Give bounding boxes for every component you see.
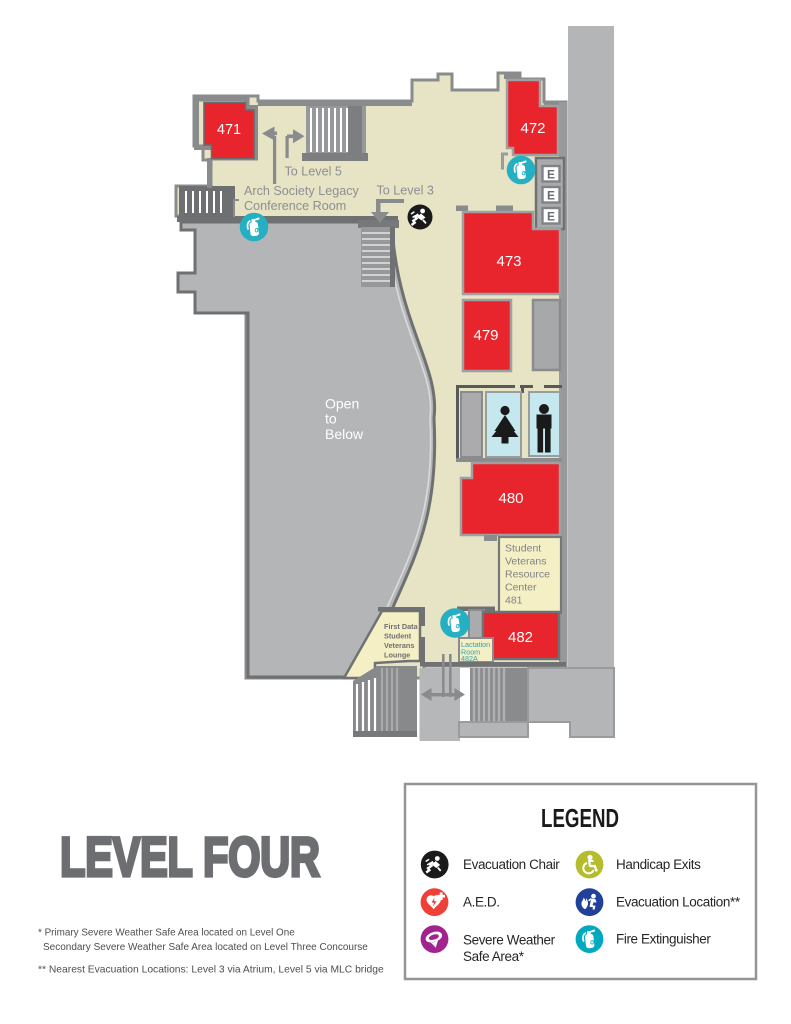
svg-text:480: 480 (498, 490, 523, 507)
svg-text:Evacuation Chair: Evacuation Chair (463, 857, 560, 872)
svg-text:Student: Student (384, 632, 412, 641)
svg-text:482A: 482A (461, 654, 478, 663)
svg-text:Secondary Severe Weather Safe: Secondary Severe Weather Safe Area locat… (43, 942, 368, 953)
svg-text:Conference Room: Conference Room (244, 199, 346, 213)
svg-text:E: E (547, 189, 555, 203)
svg-text:Evacuation Location**: Evacuation Location** (616, 895, 741, 910)
svg-text:E: E (547, 168, 555, 182)
svg-text:to: to (325, 411, 337, 427)
svg-text:First Data: First Data (384, 622, 419, 631)
svg-text:471: 471 (217, 122, 241, 138)
svg-text:Fire Extinguisher: Fire Extinguisher (616, 932, 711, 947)
svg-text:LEGEND: LEGEND (541, 803, 619, 833)
svg-text:A.E.D.: A.E.D. (463, 895, 500, 910)
svg-text:Open: Open (325, 396, 359, 412)
svg-text:To Level 3: To Level 3 (377, 184, 434, 198)
svg-text:479: 479 (473, 327, 498, 344)
svg-text:Severe Weather: Severe Weather (463, 933, 556, 948)
svg-text:Handicap Exits: Handicap Exits (616, 857, 701, 872)
svg-text:482: 482 (508, 629, 533, 646)
svg-text:LEVEL FOUR: LEVEL FOUR (60, 826, 320, 888)
svg-text:473: 473 (496, 253, 521, 270)
svg-text:To Level 5: To Level 5 (285, 165, 342, 179)
svg-text:Student: Student (505, 543, 541, 555)
svg-text:E: E (547, 210, 555, 224)
svg-text:Arch Society Legacy: Arch Society Legacy (244, 184, 360, 198)
svg-text:Resource: Resource (505, 569, 550, 581)
svg-text:Below: Below (325, 426, 364, 442)
svg-text:Veterans: Veterans (384, 641, 414, 650)
svg-text:Veterans: Veterans (505, 556, 546, 568)
svg-text:Lounge: Lounge (384, 651, 410, 660)
svg-text:481: 481 (505, 595, 523, 607)
svg-text:* Primary Severe Weather Safe: * Primary Severe Weather Safe Area locat… (38, 928, 295, 939)
svg-text:472: 472 (520, 120, 545, 137)
svg-text:** Nearest Evacuation Location: ** Nearest Evacuation Locations: Level 3… (38, 965, 384, 976)
svg-text:Center: Center (505, 582, 537, 594)
svg-text:Safe Area*: Safe Area* (463, 949, 525, 964)
